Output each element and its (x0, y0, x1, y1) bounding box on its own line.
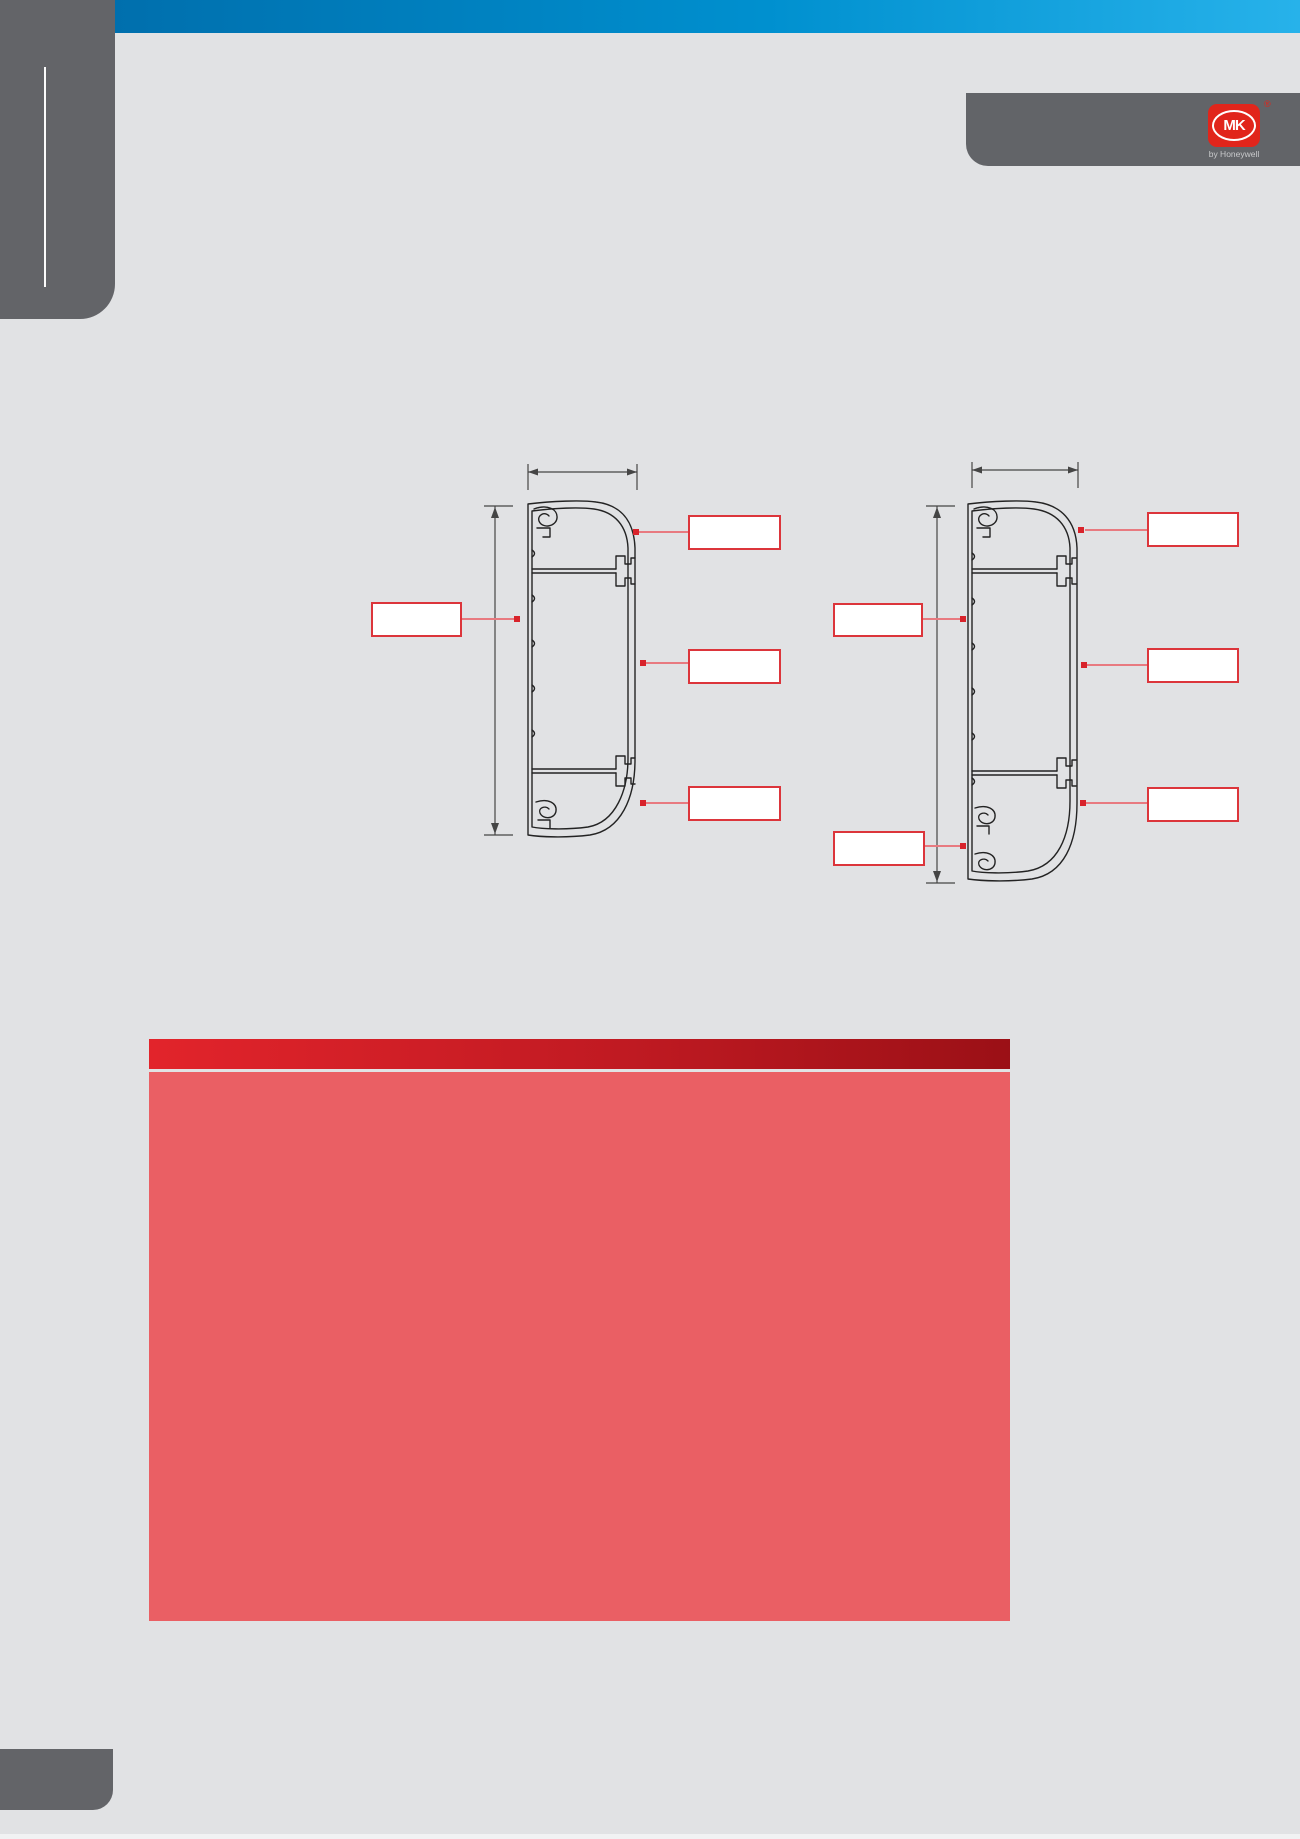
callout-dot (1081, 662, 1087, 668)
callout-box-right-top (1147, 512, 1239, 547)
callout-box-left (371, 602, 462, 637)
callout-box-right-middle (688, 649, 781, 684)
callout-dot (1078, 527, 1084, 533)
callout-line (923, 618, 962, 620)
callout-line (462, 618, 515, 620)
table-title-bar (149, 1039, 1010, 1069)
callout-line (1085, 529, 1147, 531)
height-dimension-line (926, 506, 955, 883)
callout-box-left-bottom (833, 831, 925, 866)
table-grid (149, 1072, 1010, 1621)
top-left-section-tab (0, 0, 115, 319)
callout-dot (633, 529, 639, 535)
top-accent-bar (115, 0, 1300, 33)
profile-outline (528, 501, 635, 837)
callout-box-right-bottom (1147, 787, 1239, 822)
callout-line (646, 662, 688, 664)
width-dimension-line (972, 462, 1078, 488)
callout-box-left-middle (833, 603, 923, 637)
brand-box: MK ® by Honeywell (966, 93, 1300, 166)
mk-logo-oval: MK (1212, 110, 1256, 141)
callout-dot (960, 616, 966, 622)
bottom-left-section-tab (0, 1749, 113, 1810)
trunking-profile-drawing-right (920, 458, 1090, 890)
brand-byline: by Honeywell (1208, 149, 1260, 159)
document-page: MK ® by Honeywell (0, 0, 1300, 1839)
callout-line (639, 531, 688, 533)
tab-divider-line (44, 67, 46, 287)
profile-outline (968, 501, 1077, 881)
callout-line (646, 802, 688, 804)
callout-dot (640, 660, 646, 666)
callout-dot (640, 800, 646, 806)
mk-logo-text: MK (1223, 117, 1244, 134)
callout-line (1086, 802, 1147, 804)
mk-logo: MK (1208, 104, 1260, 147)
callout-box-right-top (688, 515, 781, 550)
registered-trademark-icon: ® (1264, 99, 1271, 109)
callout-box-right-bottom (688, 786, 781, 821)
callout-box-right-middle (1147, 648, 1239, 683)
callout-dot (514, 616, 520, 622)
callout-line (1087, 664, 1147, 666)
callout-dot (960, 843, 966, 849)
width-dimension-line (528, 464, 637, 490)
callout-dot (1080, 800, 1086, 806)
table-gridlines (149, 1072, 1010, 1621)
trunking-profile-drawing-left (480, 460, 660, 845)
height-dimension-line (484, 506, 513, 835)
callout-line (925, 845, 962, 847)
page-bottom-edge (0, 1834, 1300, 1839)
